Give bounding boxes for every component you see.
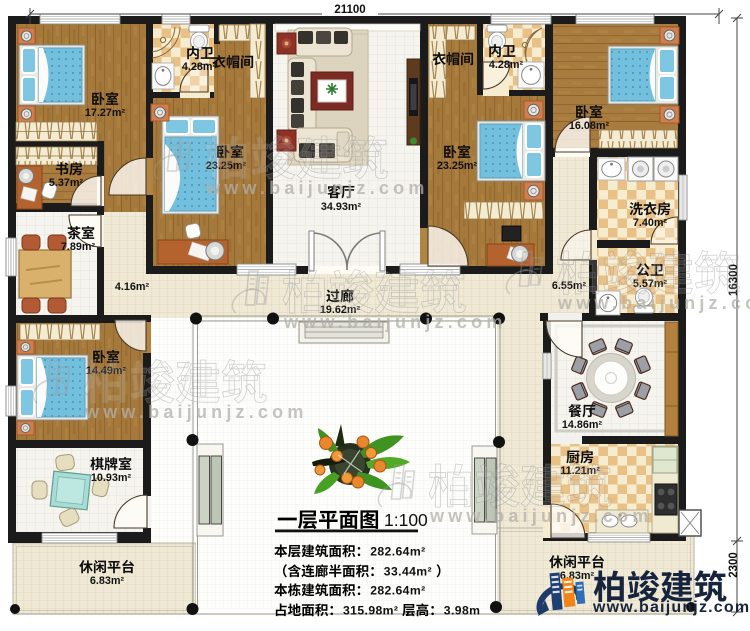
svg-text:17.27m²: 17.27m² bbox=[85, 107, 126, 119]
svg-text:282.64m²: 282.64m² bbox=[370, 545, 425, 559]
svg-text:23.25m²: 23.25m² bbox=[437, 160, 478, 172]
svg-text:14.86m²: 14.86m² bbox=[562, 419, 603, 431]
svg-text:34.93m²: 34.93m² bbox=[321, 201, 362, 213]
svg-text:1:100: 1:100 bbox=[384, 510, 428, 530]
svg-text:315.98m²: 315.98m² bbox=[343, 604, 398, 618]
svg-text:5.37m²: 5.37m² bbox=[49, 177, 84, 189]
svg-text:4.28m²: 4.28m² bbox=[489, 59, 524, 71]
svg-text:10.93m²: 10.93m² bbox=[91, 472, 132, 484]
svg-text:21100: 21100 bbox=[334, 4, 365, 16]
svg-text:3.98m: 3.98m bbox=[444, 604, 481, 618]
svg-text:2300: 2300 bbox=[728, 552, 740, 578]
svg-text:4.28m²: 4.28m² bbox=[182, 61, 217, 73]
svg-text:www.baijunjz.com: www.baijunjz.com bbox=[592, 599, 750, 616]
svg-text:4.16m²: 4.16m² bbox=[115, 281, 150, 293]
svg-text:16.08m²: 16.08m² bbox=[569, 120, 610, 132]
svg-text:6.83m²: 6.83m² bbox=[90, 575, 125, 587]
svg-text:7.40m²: 7.40m² bbox=[633, 217, 668, 229]
svg-text:7.89m²: 7.89m² bbox=[61, 241, 96, 253]
svg-text:282.64m²: 282.64m² bbox=[370, 584, 425, 598]
svg-text:33.44m²: 33.44m² bbox=[384, 565, 432, 579]
